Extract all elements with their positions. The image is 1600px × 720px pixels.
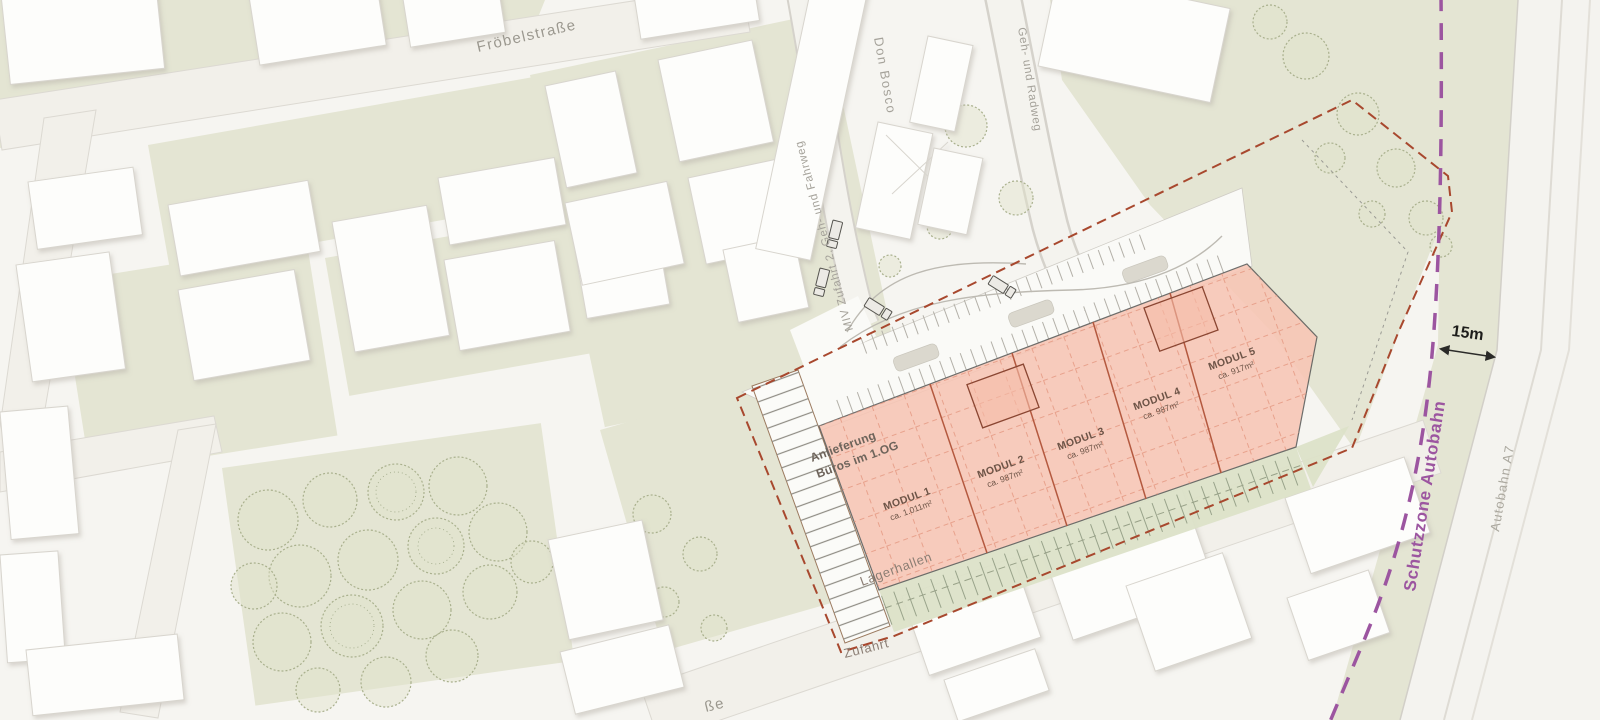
site-plan-canvas: 15m Fröbelstraße Don Bosco Geh- und Radw…	[0, 0, 1600, 720]
site-plan-map: 15m Fröbelstraße Don Bosco Geh- und Radw…	[0, 0, 1600, 720]
